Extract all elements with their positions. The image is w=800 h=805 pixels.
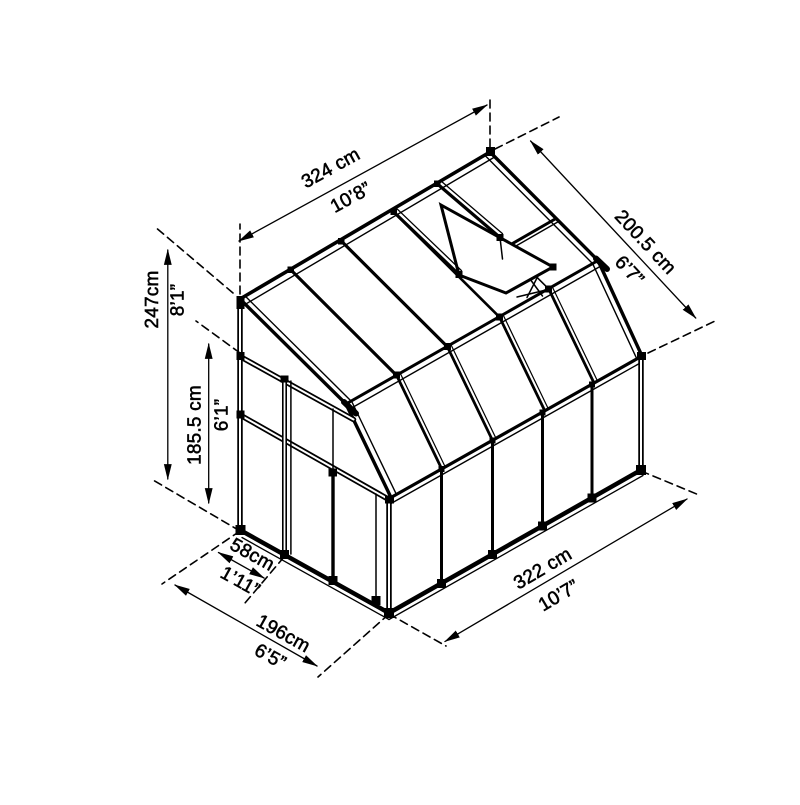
svg-text:6’1”: 6’1” (212, 399, 233, 431)
svg-text:6’7”: 6’7” (610, 252, 648, 290)
svg-text:10’8”: 10’8” (327, 178, 375, 217)
svg-text:10’7”: 10’7” (535, 576, 583, 616)
svg-text:247cm: 247cm (142, 270, 163, 328)
svg-text:8’1”: 8’1” (168, 284, 189, 316)
svg-text:185.5 cm: 185.5 cm (185, 385, 206, 465)
